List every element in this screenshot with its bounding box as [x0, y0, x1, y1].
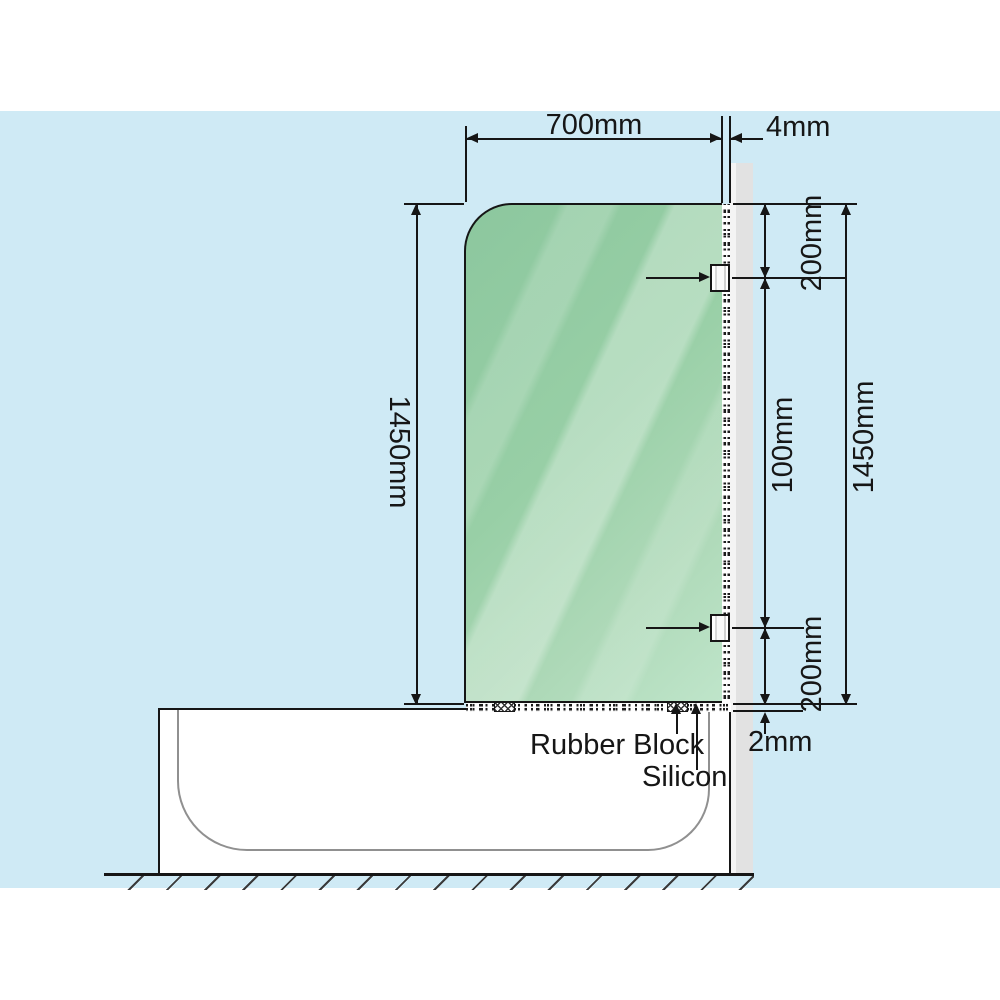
dim-line-left-1450 [416, 204, 418, 705]
arrow-inner-bottom-icon [760, 694, 770, 705]
dim-label-700mm: 700mm [469, 110, 719, 140]
wall-bracket-bottom [710, 614, 730, 642]
pointer-stem-bracket-top [646, 277, 703, 279]
dim-label-200mm-bottom: 200mm [797, 609, 827, 719]
dim-label-200mm-top: 200mm [797, 188, 827, 298]
arrow-inner-bracket-bottom-down-icon [760, 617, 770, 628]
wall-bracket-top [710, 264, 730, 292]
arrow-inner-bracket-top-down-icon [760, 267, 770, 278]
ext-line-wall-face [729, 116, 731, 203]
arrow-left1450-top-icon [411, 204, 421, 215]
ext-line-bracket-top [732, 277, 846, 279]
dim-label-1450mm-right: 1450mm [849, 367, 879, 507]
callout-silicon: Silicon [642, 762, 727, 792]
arrow-4mm-icon [731, 133, 742, 143]
arrow-silicon-icon [691, 703, 701, 714]
arrow-right1450-top-icon [841, 204, 851, 215]
rubber-block-left [494, 702, 515, 712]
ext-line-bottom-right [733, 703, 857, 705]
diagram-canvas: 700mm 4mm 1450mm 200mm 100mm 200mm 1450m… [0, 0, 1000, 1000]
arrow-inner-top-icon [760, 204, 770, 215]
dim-label-1450mm-left: 1450mm [384, 382, 414, 522]
ground-line [104, 873, 754, 876]
dim-label-2mm: 2mm [748, 727, 812, 757]
pointer-stem-bracket-bottom [646, 627, 703, 629]
arrow-right1450-bottom-icon [841, 694, 851, 705]
arrow-inner-bracket-top-up-icon [760, 278, 770, 289]
dim-label-100mm: 100mm [768, 390, 798, 500]
arrow-rubber-block-icon [671, 703, 681, 714]
wall-section [730, 163, 753, 875]
arrow-2mm-icon [760, 712, 770, 723]
arrow-bracket-bottom-pointer-icon [699, 622, 710, 632]
dim-line-right-1450 [845, 204, 847, 705]
ground-hatch [106, 876, 754, 890]
arrow-bracket-top-pointer-icon [699, 272, 710, 282]
ext-line-glass-edge [721, 116, 723, 203]
callout-rubber-block: Rubber Block [530, 730, 704, 760]
ext-line-top-right [733, 203, 857, 205]
arrow-left1450-bottom-icon [411, 694, 421, 705]
arrow-inner-bracket-bottom-up-icon [760, 628, 770, 639]
dim-label-4mm: 4mm [766, 112, 830, 142]
